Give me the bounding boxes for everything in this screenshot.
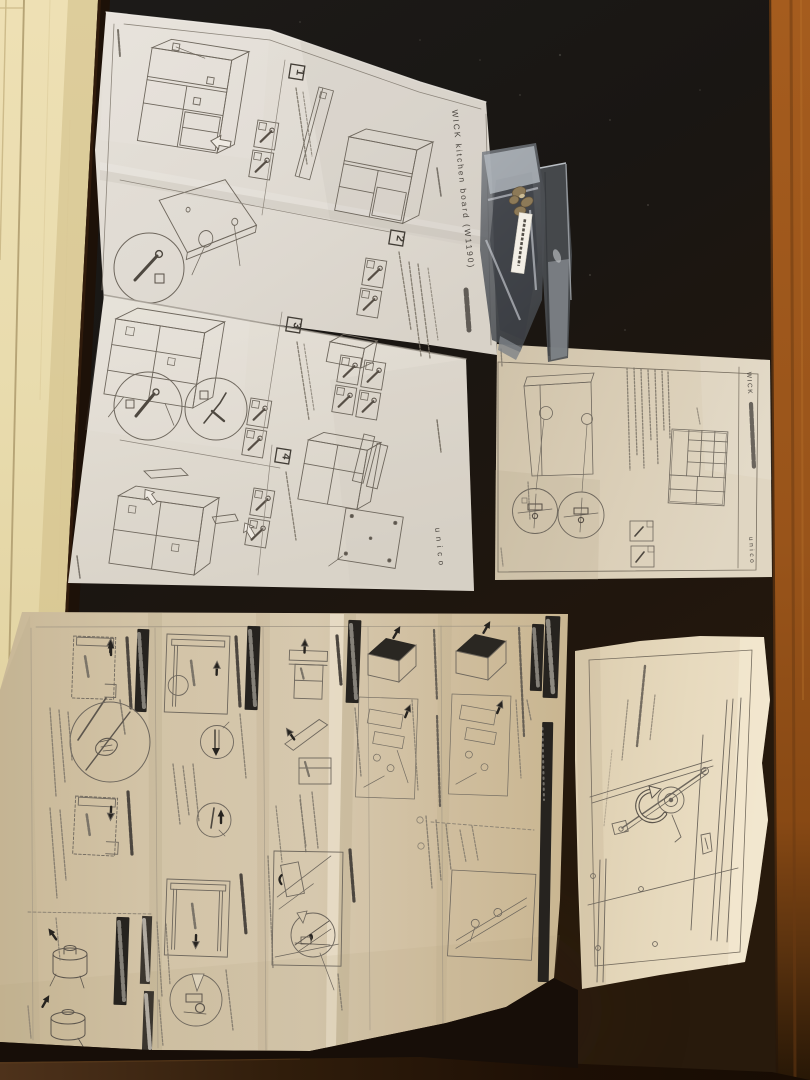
svg-text:unico: unico bbox=[747, 537, 755, 566]
svg-text:WICK: WICK bbox=[745, 372, 753, 396]
